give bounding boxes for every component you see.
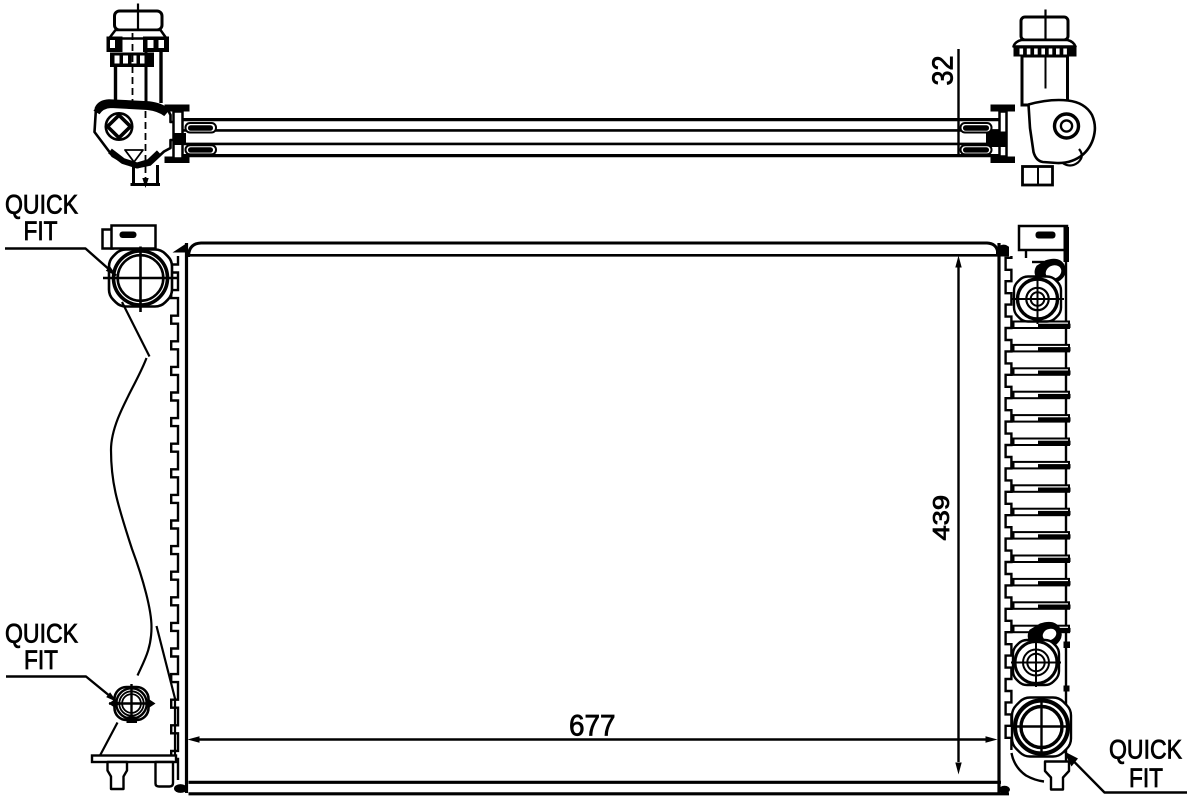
svg-text:QUICK: QUICK (5, 619, 78, 649)
svg-text:677: 677 (569, 710, 616, 743)
svg-text:FIT: FIT (24, 216, 58, 246)
svg-text:439: 439 (928, 495, 954, 541)
svg-text:32: 32 (928, 56, 960, 86)
svg-text:QUICK: QUICK (1109, 735, 1182, 765)
svg-text:FIT: FIT (24, 645, 58, 675)
svg-text:FIT: FIT (1129, 763, 1163, 793)
svg-text:QUICK: QUICK (5, 190, 78, 220)
